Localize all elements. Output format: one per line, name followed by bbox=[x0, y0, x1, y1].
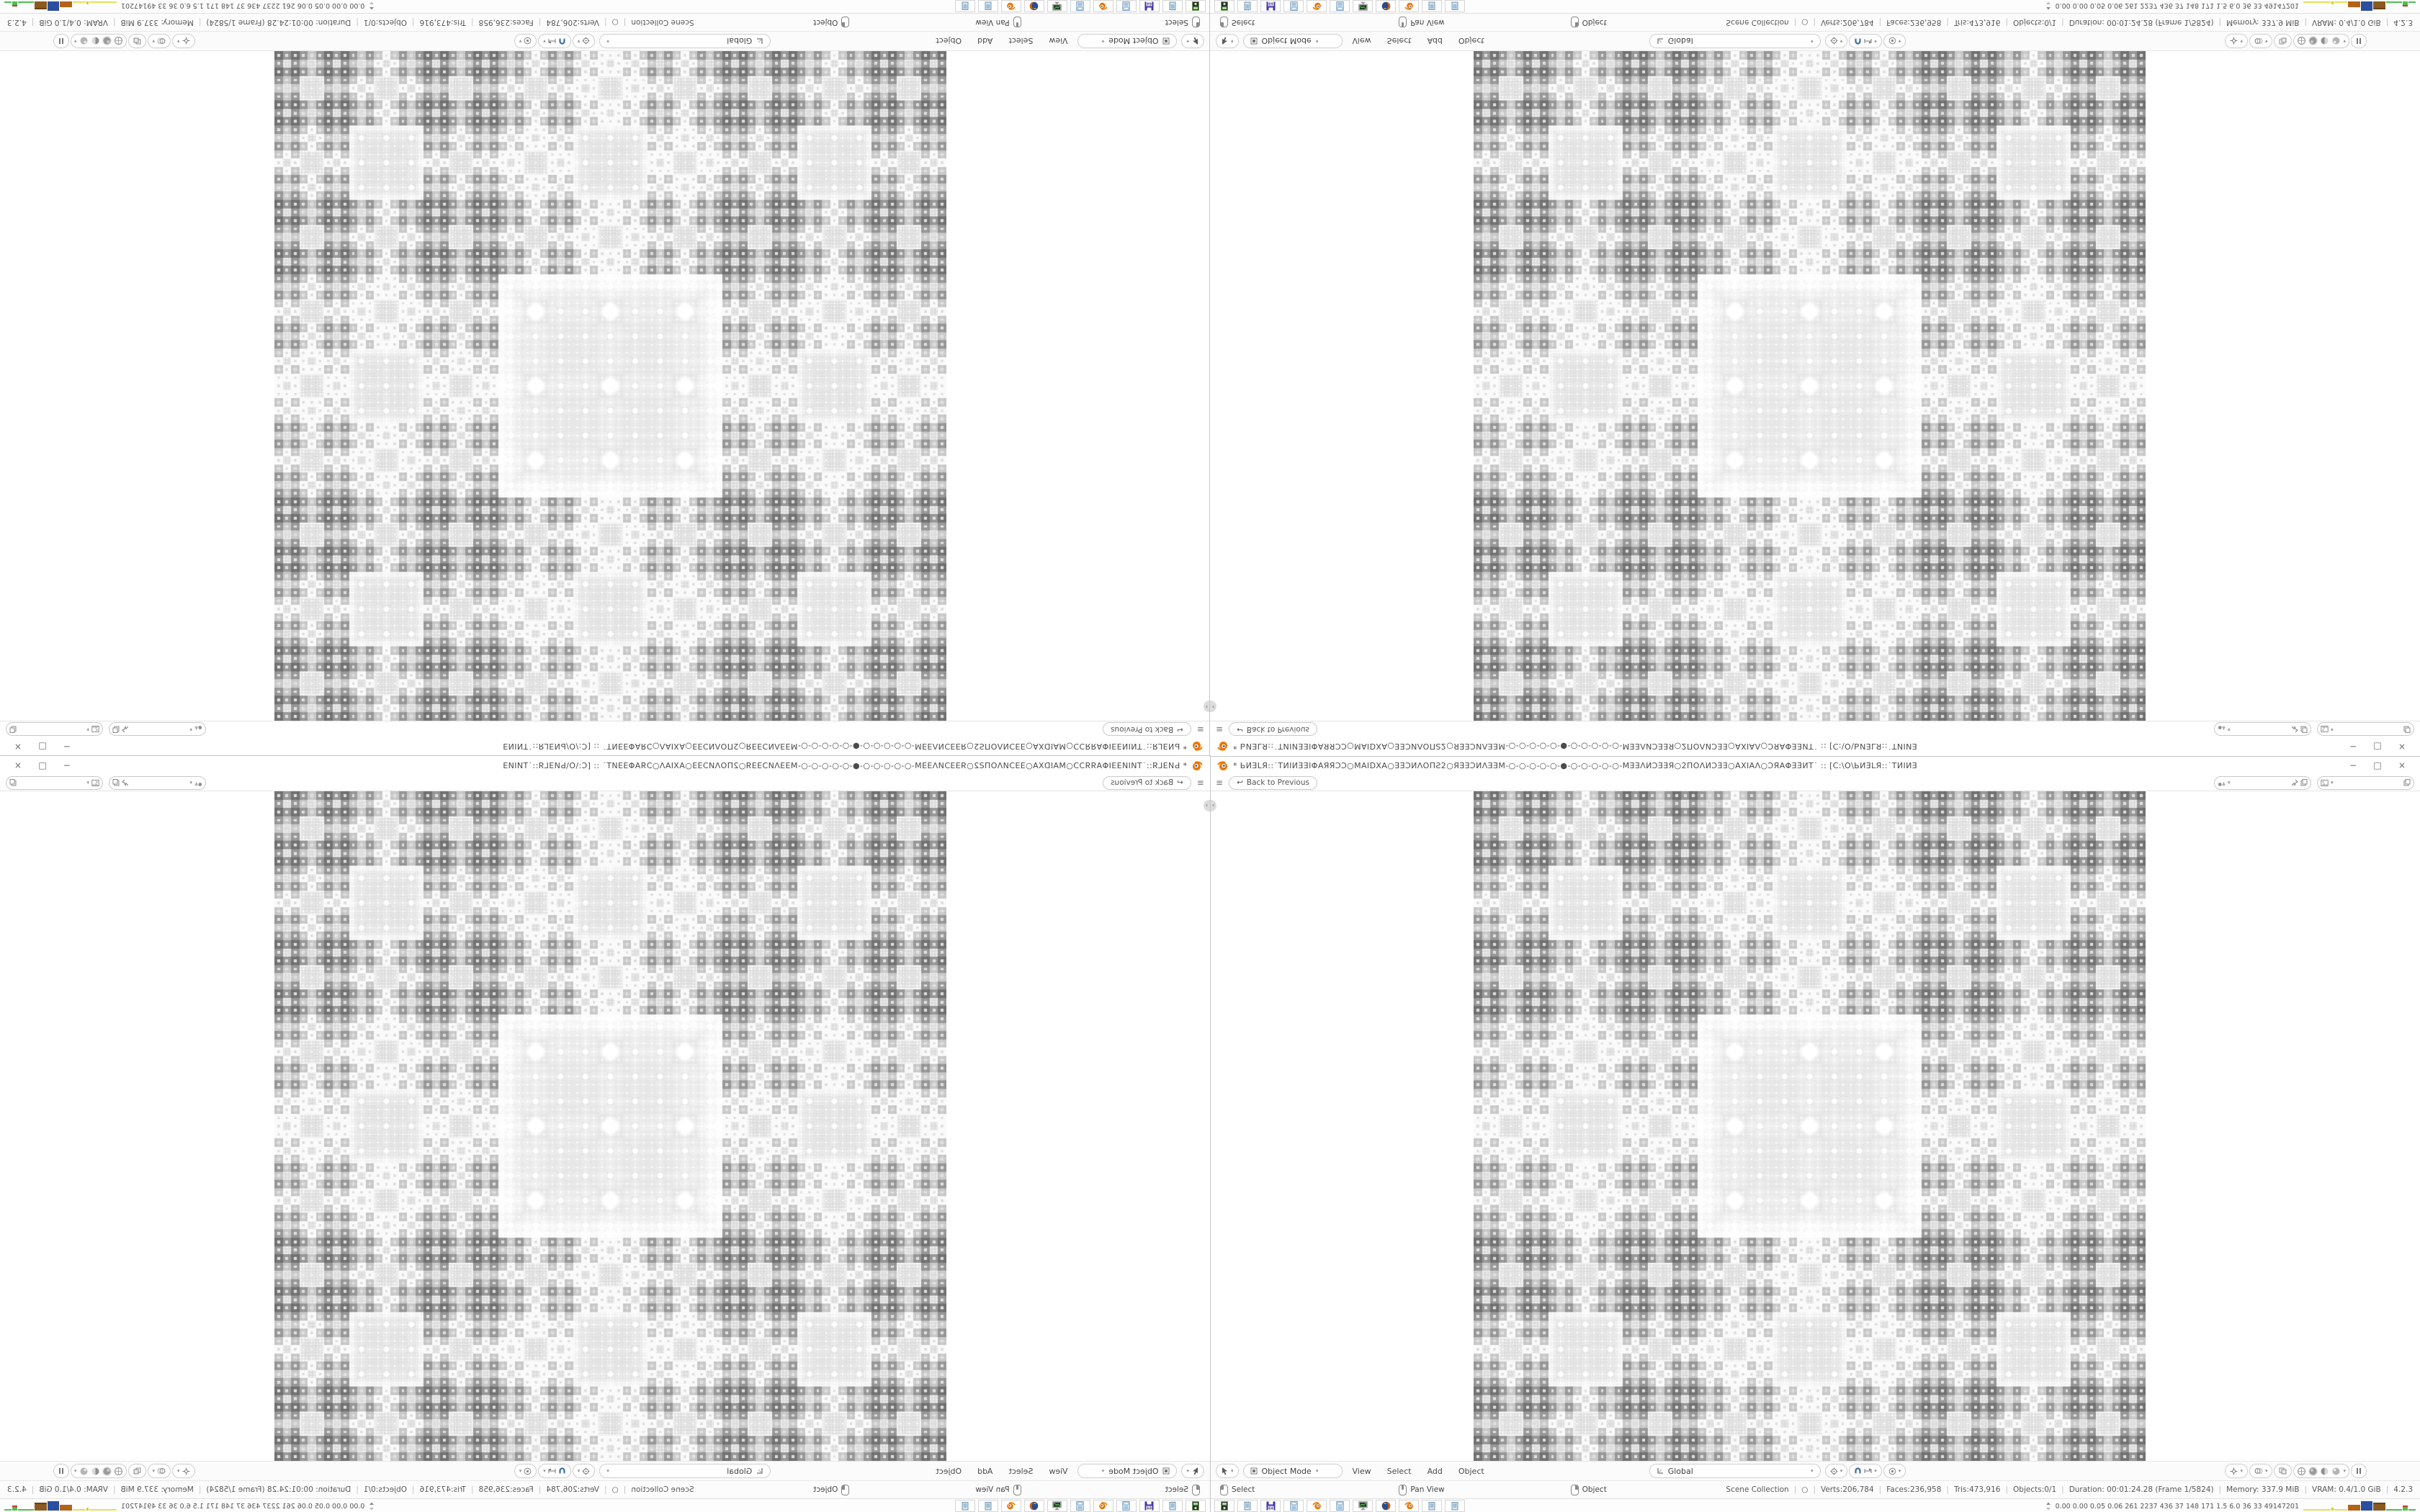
taskbar-app-capture-device[interactable] bbox=[1186, 1, 1206, 13]
menu-view[interactable]: View bbox=[1347, 37, 1377, 46]
mouse-right-icon bbox=[841, 1485, 849, 1495]
taskbar-app-capture-device[interactable] bbox=[1186, 1500, 1206, 1512]
taskbar-app-blender-2[interactable] bbox=[1001, 1, 1021, 13]
collection-circle-icon: ○ bbox=[612, 1485, 632, 1494]
desktop-mosaic: * ЬИƎLЯ::˙TИIИƎƎIΦAЯЯƆƆ○MAIDXA○ƎƎƆИΛΟΠƧ2… bbox=[0, 0, 2420, 1512]
transform-orientation-select[interactable]: Global ▾ bbox=[599, 34, 771, 48]
overlays-button[interactable]: ▾ bbox=[2249, 1464, 2273, 1478]
scene-name-field[interactable] bbox=[131, 778, 187, 788]
chevron-down-icon: ▾ bbox=[519, 1468, 522, 1474]
viewport-header: ▾ Object Mode ▾ View Select Add Object G… bbox=[1210, 32, 2420, 51]
viewport-3d[interactable]: ‹ bbox=[0, 791, 1210, 1461]
chevron-down-icon: ▾ bbox=[74, 38, 77, 44]
shading-wireframe-button[interactable] bbox=[114, 1467, 123, 1476]
taskbar-app-calculator-2[interactable] bbox=[1070, 1500, 1090, 1512]
active-tool-button[interactable]: ▾ bbox=[1216, 1464, 1239, 1478]
viewlayer-selector[interactable]: ▾ bbox=[2317, 776, 2414, 790]
back-to-previous-button[interactable]: ↩ Back to Previous bbox=[1103, 776, 1191, 790]
new-viewlayer-icon[interactable] bbox=[9, 779, 17, 786]
transform-orientation-select[interactable]: Global ▾ bbox=[599, 1464, 771, 1478]
chevron-down-icon: ▾ bbox=[2240, 38, 2243, 44]
stat-vram: VRAM: 0.4/1.0 GiB bbox=[2299, 18, 2380, 27]
shading-mode-group: ▾ bbox=[71, 1464, 127, 1478]
pause-preview-button[interactable] bbox=[53, 1464, 69, 1478]
viewlayer-name-field[interactable] bbox=[19, 725, 84, 734]
stats-graph bbox=[2303, 1, 2416, 12]
menu-view[interactable]: View bbox=[1043, 37, 1073, 46]
xray-toggle-button[interactable] bbox=[2274, 34, 2292, 48]
taskbar-app-notepad-3[interactable] bbox=[955, 1, 975, 13]
taskbar-app-firefox[interactable] bbox=[1024, 1, 1044, 13]
graph-brown-bar bbox=[35, 1503, 47, 1511]
mouse-right-icon bbox=[1571, 17, 1579, 28]
menu-icon[interactable]: ≡ bbox=[1216, 778, 1223, 788]
show-gizmo-button[interactable]: ▾ bbox=[172, 1464, 195, 1478]
proportional-edit-button[interactable]: ▾ bbox=[1883, 1464, 1906, 1478]
windows-taskbar: 64 0.00 0.00 0.05 0.06 261 2237 436 37 1… bbox=[1210, 1498, 2420, 1512]
stat-vram: VRAM: 0.4/1.0 GiB bbox=[39, 1485, 120, 1494]
taskbar-app-notepad-2[interactable] bbox=[1422, 1, 1442, 13]
taskbar-app-calculator[interactable] bbox=[1116, 1500, 1137, 1512]
scene-selector[interactable]: ▾ bbox=[2214, 776, 2311, 790]
shading-solid-button[interactable] bbox=[102, 1467, 112, 1476]
xray-toggle-button[interactable] bbox=[2274, 1464, 2292, 1478]
chevron-down-icon: ▾ bbox=[606, 1468, 609, 1474]
new-viewlayer-icon[interactable] bbox=[9, 726, 17, 733]
image-layer-icon bbox=[91, 726, 99, 734]
stat-objects: Objects:0/1 bbox=[364, 1485, 420, 1494]
hint-pan-view: Pan View bbox=[1399, 1485, 1444, 1495]
xray-toggle-button[interactable] bbox=[128, 34, 146, 48]
menu-object[interactable]: Object bbox=[1453, 1467, 1490, 1476]
taskbar-app-blender-2[interactable] bbox=[1399, 1, 1419, 13]
taskbar-app-blender[interactable] bbox=[1307, 1, 1327, 13]
taskbar-app-notepad-3[interactable] bbox=[1445, 1500, 1465, 1512]
object-mode-icon bbox=[1162, 37, 1170, 45]
taskbar-app-notepad[interactable] bbox=[1237, 1500, 1258, 1512]
blender-topbar: ≡ ↩ Back to Previous ▾ ▾ bbox=[0, 721, 1210, 737]
new-scene-icon[interactable] bbox=[112, 726, 120, 733]
back-arrow-icon: ↩ bbox=[1177, 725, 1183, 734]
menu-add[interactable]: Add bbox=[1422, 1467, 1448, 1476]
graph-brown-bar bbox=[2373, 1, 2385, 9]
taskbar-app-calculator[interactable] bbox=[1283, 1, 1304, 13]
menu-icon[interactable]: ≡ bbox=[1216, 724, 1223, 734]
viewlayer-selector[interactable]: ▾ bbox=[6, 776, 103, 790]
taskbar-app-calculator-2[interactable] bbox=[1330, 1500, 1350, 1512]
graph-green-spike bbox=[12, 1, 17, 6]
menu-view[interactable]: View bbox=[1347, 1467, 1377, 1476]
active-tool-button[interactable]: ▾ bbox=[1216, 34, 1239, 48]
taskbar-app-calculator[interactable] bbox=[1283, 1500, 1304, 1512]
pause-icon bbox=[58, 1467, 64, 1475]
shading-material-button[interactable] bbox=[91, 37, 100, 46]
blender-logo-icon bbox=[1192, 760, 1203, 771]
scene-selector[interactable]: ▾ bbox=[2214, 723, 2311, 737]
window-titlebar: * ЬИƎLЯ::˙TИIИƎƎIΦAЯЯƆƆ○MAIDXA○ƎƎƆИΛΟΠƧ2… bbox=[1210, 737, 2420, 756]
pivot-point-button[interactable]: ▾ bbox=[1825, 1464, 1848, 1478]
pin-icon bbox=[2291, 779, 2298, 786]
snap-button[interactable]: ▾ bbox=[538, 34, 571, 48]
shading-mode-group: ▾ bbox=[71, 34, 127, 48]
transform-orientation-select[interactable]: Global ▾ bbox=[1649, 1464, 1821, 1478]
mode-select[interactable]: Object Mode ▾ bbox=[1243, 34, 1343, 48]
gizmo-icon bbox=[182, 37, 190, 45]
scene-icon bbox=[2218, 726, 2226, 734]
menu-select[interactable]: Select bbox=[1003, 1467, 1039, 1476]
proportional-edit-button[interactable]: ▾ bbox=[1883, 34, 1906, 48]
chevron-down-icon: ▾ bbox=[1811, 1468, 1814, 1474]
toolbar-collapse-handle[interactable]: ‹ bbox=[1210, 800, 1216, 811]
scene-icon bbox=[194, 726, 202, 734]
taskbar-app-firefox[interactable] bbox=[1376, 1500, 1396, 1512]
stat-version: 4.2.3 bbox=[7, 1485, 39, 1494]
taskbar-app-system-monitor[interactable] bbox=[1353, 1500, 1373, 1512]
display-toggle-group: ▾ ▾ ▾ bbox=[2225, 34, 2367, 48]
taskbar-app-setup-x64[interactable]: 64 bbox=[1260, 1500, 1281, 1512]
pause-icon bbox=[2356, 37, 2362, 45]
snap-button[interactable]: ▾ bbox=[1849, 1464, 1882, 1478]
new-viewlayer-icon[interactable] bbox=[2403, 779, 2411, 786]
overlays-icon bbox=[2254, 37, 2263, 45]
new-scene-icon[interactable] bbox=[112, 779, 120, 786]
pause-preview-button[interactable] bbox=[53, 34, 69, 48]
taskbar-app-calculator[interactable] bbox=[1116, 1, 1137, 13]
close-button[interactable]: × bbox=[2391, 742, 2413, 752]
chevron-down-icon: ▾ bbox=[2265, 1468, 2268, 1474]
chevron-down-icon: ▾ bbox=[189, 780, 192, 786]
active-tool-button[interactable]: ▾ bbox=[1181, 1464, 1204, 1478]
overlays-button[interactable]: ▾ bbox=[148, 1464, 171, 1478]
magnet-icon bbox=[1854, 1467, 1862, 1475]
pivot-point-button[interactable]: ▾ bbox=[573, 1464, 596, 1478]
back-arrow-icon: ↩ bbox=[1177, 778, 1183, 787]
graph-green-line bbox=[2386, 1509, 2402, 1511]
taskbar-app-notepad-2[interactable] bbox=[1422, 1500, 1442, 1512]
chevron-down-icon: ▾ bbox=[74, 1468, 77, 1474]
scene-icon bbox=[194, 779, 202, 787]
scene-name-field[interactable] bbox=[2233, 778, 2289, 788]
cursor-tool-icon bbox=[1221, 1467, 1229, 1475]
graph-yellow-dot bbox=[2331, 1508, 2334, 1511]
graph-blue-bar bbox=[2361, 1501, 2372, 1511]
chevron-down-icon: ▾ bbox=[1899, 1468, 1901, 1474]
back-to-previous-button[interactable]: ↩ Back to Previous bbox=[1229, 723, 1317, 737]
taskbar-system-stats: 0.00 0.00 0.05 0.06 261 2237 436 37 148 … bbox=[2045, 1, 2416, 12]
taskbar-app-calculator-2[interactable] bbox=[1070, 1, 1090, 13]
scene-selector[interactable]: ▾ bbox=[109, 723, 206, 737]
show-gizmo-button[interactable]: ▾ bbox=[172, 34, 195, 48]
graph-green-line bbox=[2386, 1, 2402, 3]
taskbar-app-notepad[interactable] bbox=[1162, 1, 1183, 13]
window-title: * ЬИƎLЯ::˙TИIИƎƎIΦAЯЯƆƆ○MAIDXA○ƎƎƆИΛΟΠƧ2… bbox=[83, 742, 1187, 752]
graph-orange-bar bbox=[2348, 1, 2360, 7]
shading-solid-button[interactable] bbox=[2308, 37, 2318, 46]
taskbar-app-notepad-3[interactable] bbox=[1445, 1, 1465, 13]
collection-circle-icon: ○ bbox=[612, 18, 632, 27]
graph-blue-bar bbox=[2361, 1, 2372, 11]
menu-view[interactable]: View bbox=[1043, 1467, 1073, 1476]
menu-object[interactable]: Object bbox=[930, 37, 967, 46]
proportional-edit-button[interactable]: ▾ bbox=[514, 34, 537, 48]
stat-memory: Memory: 337.9 MiB bbox=[2214, 1485, 2300, 1494]
stats-numbers: 0.00 0.00 0.05 0.06 261 2237 436 37 148 … bbox=[121, 1, 364, 9]
close-button[interactable]: × bbox=[2391, 760, 2413, 770]
mouse-middle-icon bbox=[1399, 17, 1407, 28]
viewlayer-name-field[interactable] bbox=[2336, 778, 2401, 788]
menu-add[interactable]: Add bbox=[972, 1467, 998, 1476]
menu-object[interactable]: Object bbox=[1453, 37, 1490, 46]
xray-icon bbox=[2279, 37, 2287, 45]
object-mode-icon bbox=[1250, 1467, 1258, 1475]
xray-toggle-button[interactable] bbox=[128, 1464, 146, 1478]
gizmo-icon bbox=[2230, 1467, 2238, 1475]
blender-logo-icon bbox=[1217, 760, 1228, 771]
proportional-edit-button[interactable]: ▾ bbox=[514, 1464, 537, 1478]
taskbar-app-calculator-2[interactable] bbox=[1330, 1, 1350, 13]
chevron-down-icon: ▾ bbox=[1186, 1468, 1189, 1474]
viewport-header: ▾ Object Mode ▾ View Select Add Object G… bbox=[1210, 1461, 2420, 1480]
show-gizmo-button[interactable]: ▾ bbox=[2225, 34, 2248, 48]
back-to-previous-button[interactable]: ↩ Back to Previous bbox=[1103, 723, 1191, 737]
chevron-down-icon: ▾ bbox=[2240, 1468, 2243, 1474]
pause-icon bbox=[2356, 1467, 2362, 1475]
xray-icon bbox=[133, 37, 141, 45]
snap-pivot-group: ▾ ▾ ▾ bbox=[514, 34, 596, 48]
minimize-button[interactable]: − bbox=[2342, 760, 2364, 770]
back-arrow-icon: ↩ bbox=[1237, 725, 1243, 734]
shading-solid-button[interactable] bbox=[102, 37, 112, 46]
taskbar-system-stats: 0.00 0.00 0.05 0.06 261 2237 436 37 148 … bbox=[2045, 1500, 2416, 1511]
shading-wireframe-button[interactable] bbox=[2297, 37, 2306, 46]
taskbar-app-system-monitor[interactable] bbox=[1353, 1, 1373, 13]
taskbar-app-blender[interactable] bbox=[1093, 1500, 1113, 1512]
new-viewlayer-icon[interactable] bbox=[2403, 726, 2411, 733]
restore-button[interactable]: □ bbox=[2367, 742, 2388, 752]
scene-statistics: Scene Collection ○ Verts:206,784 Faces:2… bbox=[1726, 1485, 2413, 1494]
stat-objects: Objects:0/1 bbox=[364, 18, 420, 27]
fractal-render bbox=[1474, 51, 2146, 721]
viewport-3d[interactable]: ‹ bbox=[1210, 51, 2420, 721]
blender-window-top-left: * ЬИƎLЯ::˙TИIИƎƎIΦAЯЯƆƆ○MAIDXA○ƎƎƆИΛΟΠƧ2… bbox=[0, 0, 1210, 756]
shading-mode-group: ▾ bbox=[2293, 1464, 2349, 1478]
graph-green-line bbox=[18, 1, 34, 3]
snap-button[interactable]: ▾ bbox=[538, 1464, 571, 1478]
svg-text:64: 64 bbox=[1268, 2, 1273, 6]
pivot-icon bbox=[582, 1467, 590, 1475]
menu-add[interactable]: Add bbox=[1422, 37, 1448, 46]
shading-material-button[interactable] bbox=[91, 1467, 100, 1476]
shading-solid-button[interactable] bbox=[2308, 1467, 2318, 1476]
taskbar-app-capture-device[interactable] bbox=[1214, 1500, 1234, 1512]
taskbar-system-stats: 0.00 0.00 0.05 0.06 261 2237 436 37 148 … bbox=[4, 1, 375, 12]
restore-button[interactable]: □ bbox=[32, 760, 53, 770]
mode-select[interactable]: Object Mode ▾ bbox=[1243, 1464, 1343, 1478]
scene-name-field[interactable] bbox=[131, 725, 187, 734]
menu-select[interactable]: Select bbox=[1381, 37, 1417, 46]
stat-verts: Verts:206,784 bbox=[1808, 18, 1873, 27]
minimize-button[interactable]: − bbox=[56, 760, 78, 770]
taskbar-app-system-monitor[interactable] bbox=[1047, 1, 1067, 13]
viewport-3d[interactable]: ‹ bbox=[0, 51, 1210, 721]
taskbar-app-notepad-2[interactable] bbox=[978, 1, 998, 13]
toolbar-collapse-handle[interactable]: ‹ bbox=[1210, 701, 1216, 712]
taskbar-app-blender[interactable] bbox=[1093, 1, 1113, 13]
menu-select[interactable]: Select bbox=[1003, 37, 1039, 46]
proportional-icon bbox=[1888, 1467, 1896, 1475]
taskbar-app-setup-x64[interactable]: 64 bbox=[1260, 1, 1281, 13]
viewlayer-name-field[interactable] bbox=[19, 778, 84, 788]
taskbar-app-blender-2[interactable] bbox=[1001, 1500, 1021, 1512]
new-scene-icon[interactable] bbox=[2300, 779, 2308, 786]
taskbar-app-notepad[interactable] bbox=[1237, 1, 1258, 13]
windows-taskbar: 64 0.00 0.00 0.05 0.06 261 2237 436 37 1… bbox=[0, 0, 1210, 14]
chevron-down-icon: ▾ bbox=[543, 1468, 546, 1474]
stat-faces: Faces:236,958 bbox=[1874, 18, 1942, 27]
shading-rendered-button[interactable] bbox=[79, 37, 89, 46]
graph-green-tail bbox=[2408, 1, 2416, 3]
window-titlebar: * ЬИƎLЯ::˙TИIИƎƎIΦAЯЯƆƆ○MAIDXA○ƎƎƆИΛΟΠƧ2… bbox=[1210, 756, 2420, 775]
shading-wireframe-button[interactable] bbox=[2297, 1467, 2306, 1476]
chevron-down-icon: ▾ bbox=[2331, 726, 2334, 732]
overlays-button[interactable]: ▾ bbox=[2249, 34, 2273, 48]
hint-object: Object bbox=[813, 17, 849, 28]
toolbar-collapse-handle[interactable]: ‹ bbox=[1204, 701, 1210, 712]
stat-faces: Faces:236,958 bbox=[479, 1485, 547, 1494]
graph-green-tail bbox=[2408, 1509, 2416, 1511]
updown-arrows-icon bbox=[369, 1, 375, 10]
display-toggle-group: ▾ ▾ ▾ bbox=[53, 34, 195, 48]
menu-select[interactable]: Select bbox=[1381, 1467, 1417, 1476]
mode-select[interactable]: Object Mode ▾ bbox=[1077, 34, 1177, 48]
graph-yellow-line-2 bbox=[2334, 1, 2347, 3]
shading-rendered-button[interactable] bbox=[2331, 37, 2341, 46]
blender-topbar: ≡ ↩ Back to Previous ▾ ▾ bbox=[1210, 775, 2420, 791]
restore-button[interactable]: □ bbox=[32, 742, 53, 752]
shading-rendered-button[interactable] bbox=[79, 1467, 89, 1476]
transform-orientation-select[interactable]: Global ▾ bbox=[1649, 34, 1821, 48]
stat-memory: Memory: 337.9 MiB bbox=[121, 1485, 207, 1494]
pivot-point-button[interactable]: ▾ bbox=[1825, 34, 1848, 48]
shading-rendered-button[interactable] bbox=[2331, 1467, 2341, 1476]
hint-select: Select bbox=[1220, 1485, 1255, 1495]
chevron-down-icon: ▾ bbox=[1102, 1468, 1105, 1474]
chevron-down-icon: ▾ bbox=[543, 38, 546, 44]
mode-select[interactable]: Object Mode ▾ bbox=[1077, 1464, 1177, 1478]
pause-preview-button[interactable] bbox=[2351, 34, 2367, 48]
scene-selector[interactable]: ▾ bbox=[109, 776, 206, 790]
new-scene-icon[interactable] bbox=[2300, 726, 2308, 733]
show-gizmo-button[interactable]: ▾ bbox=[2225, 1464, 2248, 1478]
menu-icon[interactable]: ≡ bbox=[1197, 724, 1204, 734]
shading-material-button[interactable] bbox=[2320, 37, 2329, 46]
taskbar-app-notepad-2[interactable] bbox=[978, 1500, 998, 1512]
viewport-3d[interactable]: ‹ bbox=[1210, 791, 2420, 1461]
taskbar-app-setup-x64[interactable]: 64 bbox=[1139, 1500, 1160, 1512]
pause-preview-button[interactable] bbox=[2351, 1464, 2367, 1478]
graph-yellow-line bbox=[89, 1509, 117, 1511]
taskbar-app-firefox[interactable] bbox=[1024, 1500, 1044, 1512]
stat-objects: Objects:0/1 bbox=[2000, 18, 2056, 27]
orientation-axes-icon bbox=[756, 37, 763, 45]
taskbar-app-blender-2[interactable] bbox=[1399, 1500, 1419, 1512]
hint-select: Select bbox=[1165, 1485, 1200, 1495]
minimize-button[interactable]: − bbox=[2342, 742, 2364, 752]
viewlayer-selector[interactable]: ▾ bbox=[6, 723, 103, 737]
graph-yellow-dot bbox=[86, 1, 89, 4]
menu-icon[interactable]: ≡ bbox=[1197, 778, 1204, 788]
taskbar-app-capture-device[interactable] bbox=[1214, 1, 1234, 13]
scene-name-field[interactable] bbox=[2233, 725, 2289, 734]
updown-arrows-icon bbox=[369, 1502, 375, 1511]
taskbar-app-system-monitor[interactable] bbox=[1047, 1500, 1067, 1512]
menu-add[interactable]: Add bbox=[972, 37, 998, 46]
stat-scene-collection: Scene Collection bbox=[1726, 1485, 1788, 1494]
gizmo-icon bbox=[182, 1467, 190, 1475]
pivot-icon bbox=[582, 37, 590, 45]
gizmo-icon bbox=[2230, 37, 2238, 45]
pivot-icon bbox=[1830, 1467, 1838, 1475]
active-tool-button[interactable]: ▾ bbox=[1181, 34, 1204, 48]
taskbar-app-notepad-3[interactable] bbox=[955, 1500, 975, 1512]
taskbar-app-blender[interactable] bbox=[1307, 1500, 1327, 1512]
window-titlebar: * ЬИƎLЯ::˙TИIИƎƎIΦAЯЯƆƆ○MAIDXA○ƎƎƆИΛΟΠƧ2… bbox=[0, 756, 1210, 775]
viewlayer-name-field[interactable] bbox=[2336, 725, 2401, 734]
hint-select: Select bbox=[1165, 17, 1200, 28]
taskbar-app-setup-x64[interactable]: 64 bbox=[1139, 1, 1160, 13]
shading-material-button[interactable] bbox=[2320, 1467, 2329, 1476]
pivot-point-button[interactable]: ▾ bbox=[573, 34, 596, 48]
snap-button[interactable]: ▾ bbox=[1849, 34, 1882, 48]
close-button[interactable]: × bbox=[7, 742, 29, 752]
stat-faces: Faces:236,958 bbox=[479, 18, 547, 27]
stat-duration: Duration: 00:01:24.28 (Frame 1/5824) bbox=[206, 1485, 363, 1494]
taskbar-system-stats: 0.00 0.00 0.05 0.06 261 2237 436 37 148 … bbox=[4, 1500, 375, 1511]
restore-button[interactable]: □ bbox=[2367, 760, 2388, 770]
toolbar-collapse-handle[interactable]: ‹ bbox=[1204, 800, 1210, 811]
viewlayer-selector[interactable]: ▾ bbox=[2317, 723, 2414, 737]
graph-orange-bar bbox=[2348, 1505, 2360, 1511]
status-bar: Select Pan View Object Scene Collection … bbox=[0, 14, 1210, 32]
chevron-down-icon: ▾ bbox=[1874, 1468, 1877, 1474]
graph-green-spike bbox=[2403, 1506, 2408, 1511]
chevron-down-icon: ▾ bbox=[177, 1468, 180, 1474]
taskbar-app-firefox[interactable] bbox=[1376, 1, 1396, 13]
chevron-down-icon: ▾ bbox=[2331, 780, 2334, 786]
stat-verts: Verts:206,784 bbox=[546, 1485, 611, 1494]
cursor-tool-icon bbox=[1221, 37, 1229, 45]
stat-tris: Tris:473,916 bbox=[420, 18, 479, 27]
blender-topbar: ≡ ↩ Back to Previous ▾ ▾ bbox=[0, 775, 1210, 791]
overlays-button[interactable]: ▾ bbox=[148, 34, 171, 48]
back-to-previous-button[interactable]: ↩ Back to Previous bbox=[1229, 776, 1317, 790]
pin-icon bbox=[122, 726, 129, 733]
chevron-down-icon: ▾ bbox=[606, 38, 609, 44]
stat-version: 4.2.3 bbox=[2381, 1485, 2413, 1494]
scene-statistics: Scene Collection ○ Verts:206,784 Faces:2… bbox=[7, 18, 694, 27]
hint-pan-view: Pan View bbox=[975, 17, 1021, 28]
minimize-button[interactable]: − bbox=[56, 742, 78, 752]
image-layer-icon bbox=[2321, 779, 2329, 787]
graph-orange-bar bbox=[60, 1505, 72, 1511]
chevron-down-icon: ▾ bbox=[1316, 38, 1319, 44]
chevron-down-icon: ▾ bbox=[86, 726, 89, 732]
taskbar-app-notepad[interactable] bbox=[1162, 1500, 1183, 1512]
menu-object[interactable]: Object bbox=[930, 1467, 967, 1476]
stat-faces: Faces:236,958 bbox=[1874, 1485, 1942, 1494]
close-button[interactable]: × bbox=[7, 760, 29, 770]
shading-wireframe-button[interactable] bbox=[114, 37, 123, 46]
